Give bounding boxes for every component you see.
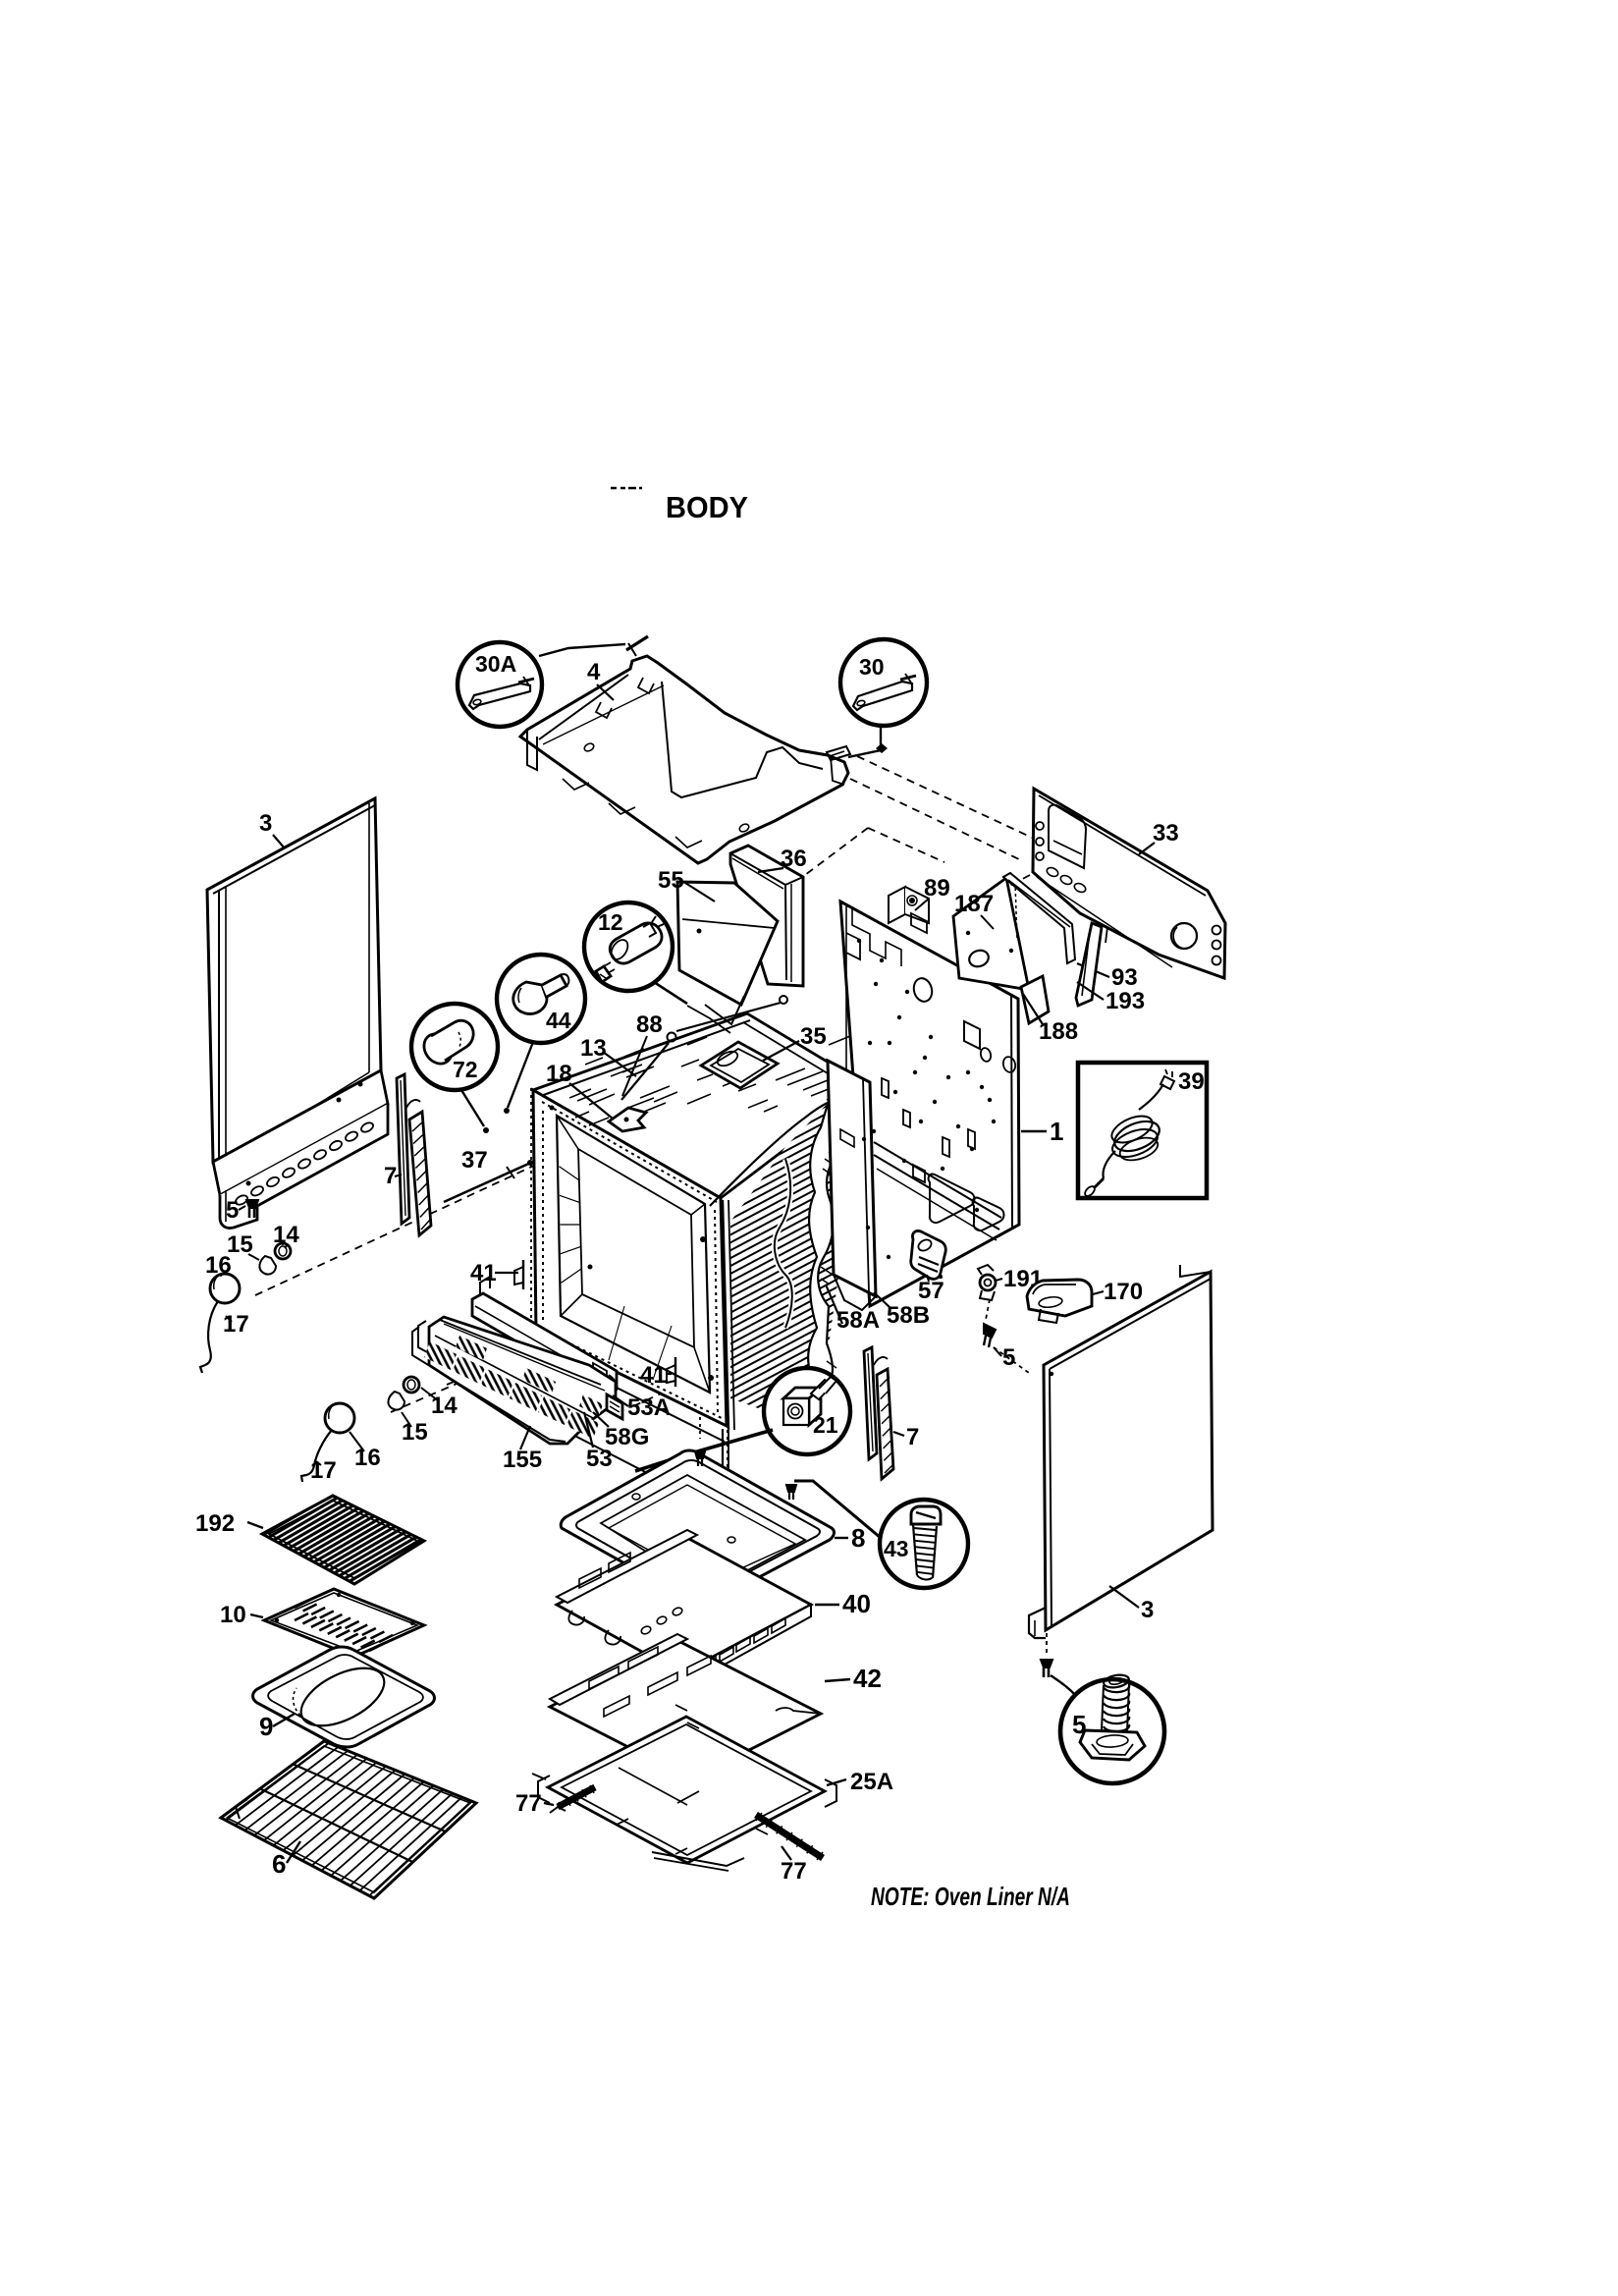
- svg-text:192: 192: [195, 1510, 235, 1537]
- svg-text:53: 53: [586, 1446, 613, 1472]
- svg-text:41: 41: [640, 1362, 667, 1389]
- svg-text:53A: 53A: [627, 1394, 671, 1421]
- svg-text:NOTE: Oven Liner N/A: NOTE: Oven Liner N/A: [871, 1882, 1070, 1911]
- svg-text:5: 5: [226, 1197, 239, 1224]
- svg-text:8: 8: [851, 1523, 865, 1553]
- svg-text:5: 5: [1002, 1344, 1015, 1371]
- svg-text:9: 9: [259, 1712, 273, 1741]
- svg-text:1: 1: [1050, 1117, 1063, 1146]
- svg-text:16: 16: [354, 1445, 381, 1471]
- svg-text:36: 36: [781, 846, 807, 872]
- svg-text:33: 33: [1153, 820, 1179, 847]
- svg-text:41: 41: [470, 1260, 497, 1286]
- svg-text:3: 3: [1141, 1597, 1154, 1623]
- svg-text:88: 88: [636, 1011, 663, 1038]
- svg-text:188: 188: [1039, 1018, 1078, 1045]
- svg-text:37: 37: [461, 1147, 488, 1174]
- svg-text:16: 16: [205, 1252, 232, 1279]
- svg-text:12: 12: [598, 909, 623, 935]
- svg-text:BODY: BODY: [666, 490, 748, 524]
- svg-text:25A: 25A: [850, 1769, 893, 1795]
- svg-text:77: 77: [781, 1858, 807, 1885]
- svg-text:43: 43: [884, 1536, 909, 1561]
- svg-text:13: 13: [580, 1035, 607, 1062]
- svg-text:155: 155: [503, 1447, 542, 1473]
- svg-text:30: 30: [859, 654, 885, 680]
- svg-text:18: 18: [546, 1061, 572, 1087]
- svg-text:193: 193: [1106, 988, 1145, 1014]
- svg-text:15: 15: [402, 1419, 428, 1446]
- svg-text:58B: 58B: [887, 1302, 930, 1329]
- svg-text:6: 6: [272, 1849, 286, 1879]
- svg-text:72: 72: [453, 1057, 478, 1082]
- svg-text:35: 35: [800, 1023, 827, 1050]
- svg-text:17: 17: [310, 1457, 337, 1484]
- svg-text:77: 77: [515, 1790, 542, 1817]
- svg-text:89: 89: [924, 875, 950, 902]
- svg-text:40: 40: [842, 1589, 871, 1618]
- svg-text:170: 170: [1104, 1279, 1143, 1305]
- svg-text:58A: 58A: [836, 1307, 880, 1334]
- svg-text:3: 3: [259, 810, 272, 837]
- svg-text:39: 39: [1178, 1068, 1205, 1095]
- svg-text:17: 17: [223, 1311, 249, 1338]
- svg-text:42: 42: [853, 1664, 882, 1693]
- svg-text:4: 4: [587, 659, 601, 685]
- svg-text:57: 57: [918, 1278, 944, 1304]
- svg-text:7: 7: [906, 1424, 919, 1450]
- svg-text:44: 44: [546, 1008, 571, 1033]
- svg-text:10: 10: [220, 1602, 246, 1628]
- svg-text:14: 14: [273, 1222, 299, 1248]
- svg-text:187: 187: [954, 891, 994, 917]
- svg-text:55: 55: [658, 867, 684, 894]
- svg-text:30A: 30A: [475, 651, 516, 677]
- svg-text:14: 14: [431, 1393, 458, 1419]
- svg-text:93: 93: [1111, 964, 1138, 991]
